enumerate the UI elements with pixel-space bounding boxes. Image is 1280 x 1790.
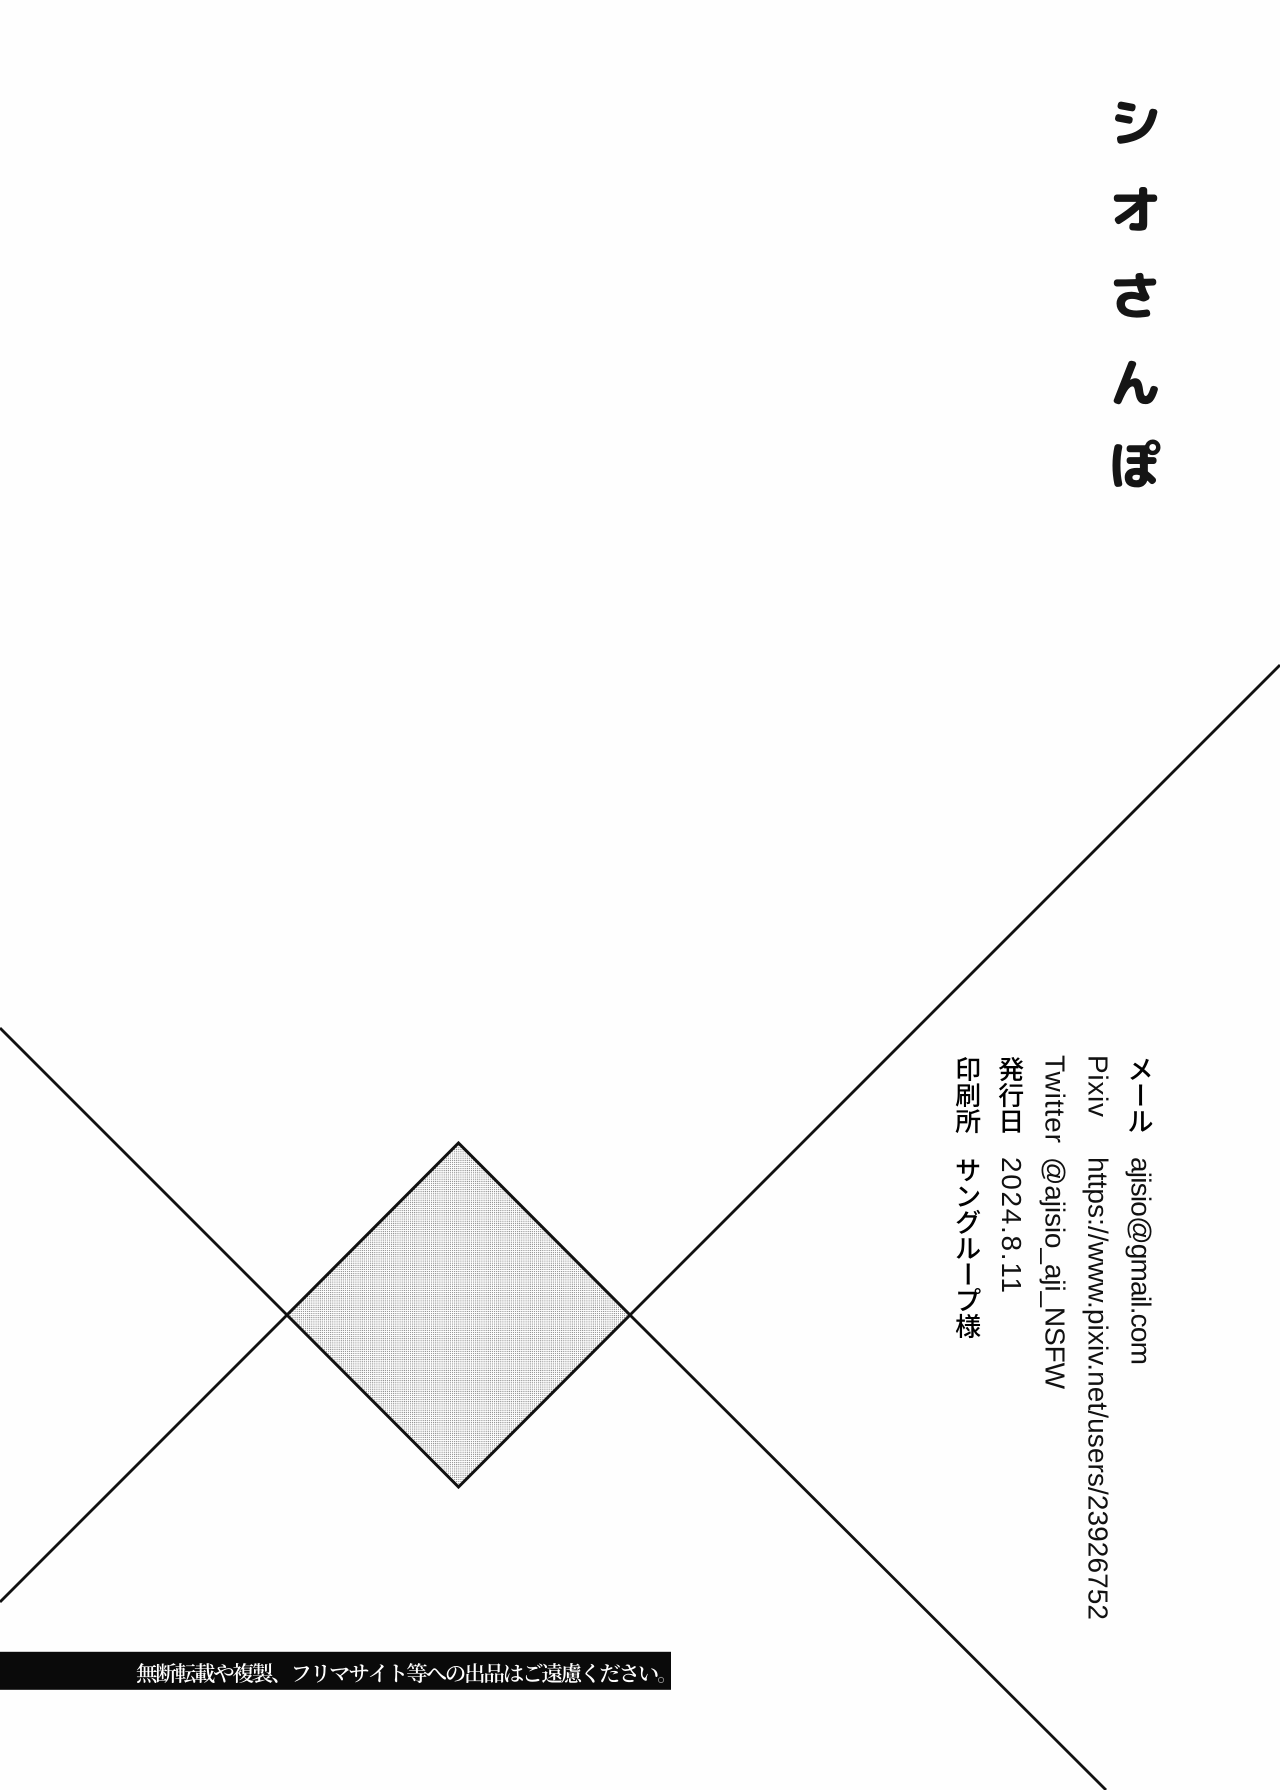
svg-text:https://www.pixiv.net/users/23: https://www.pixiv.net/users/23926752 bbox=[1082, 1157, 1113, 1620]
svg-text:ajisio@gmail.com: ajisio@gmail.com bbox=[1126, 1157, 1157, 1365]
svg-text:Twitter: Twitter bbox=[1039, 1055, 1070, 1143]
svg-text:Pixiv: Pixiv bbox=[1082, 1055, 1113, 1117]
svg-text:@ajisio_aji_NSFW: @ajisio_aji_NSFW bbox=[1039, 1157, 1070, 1390]
